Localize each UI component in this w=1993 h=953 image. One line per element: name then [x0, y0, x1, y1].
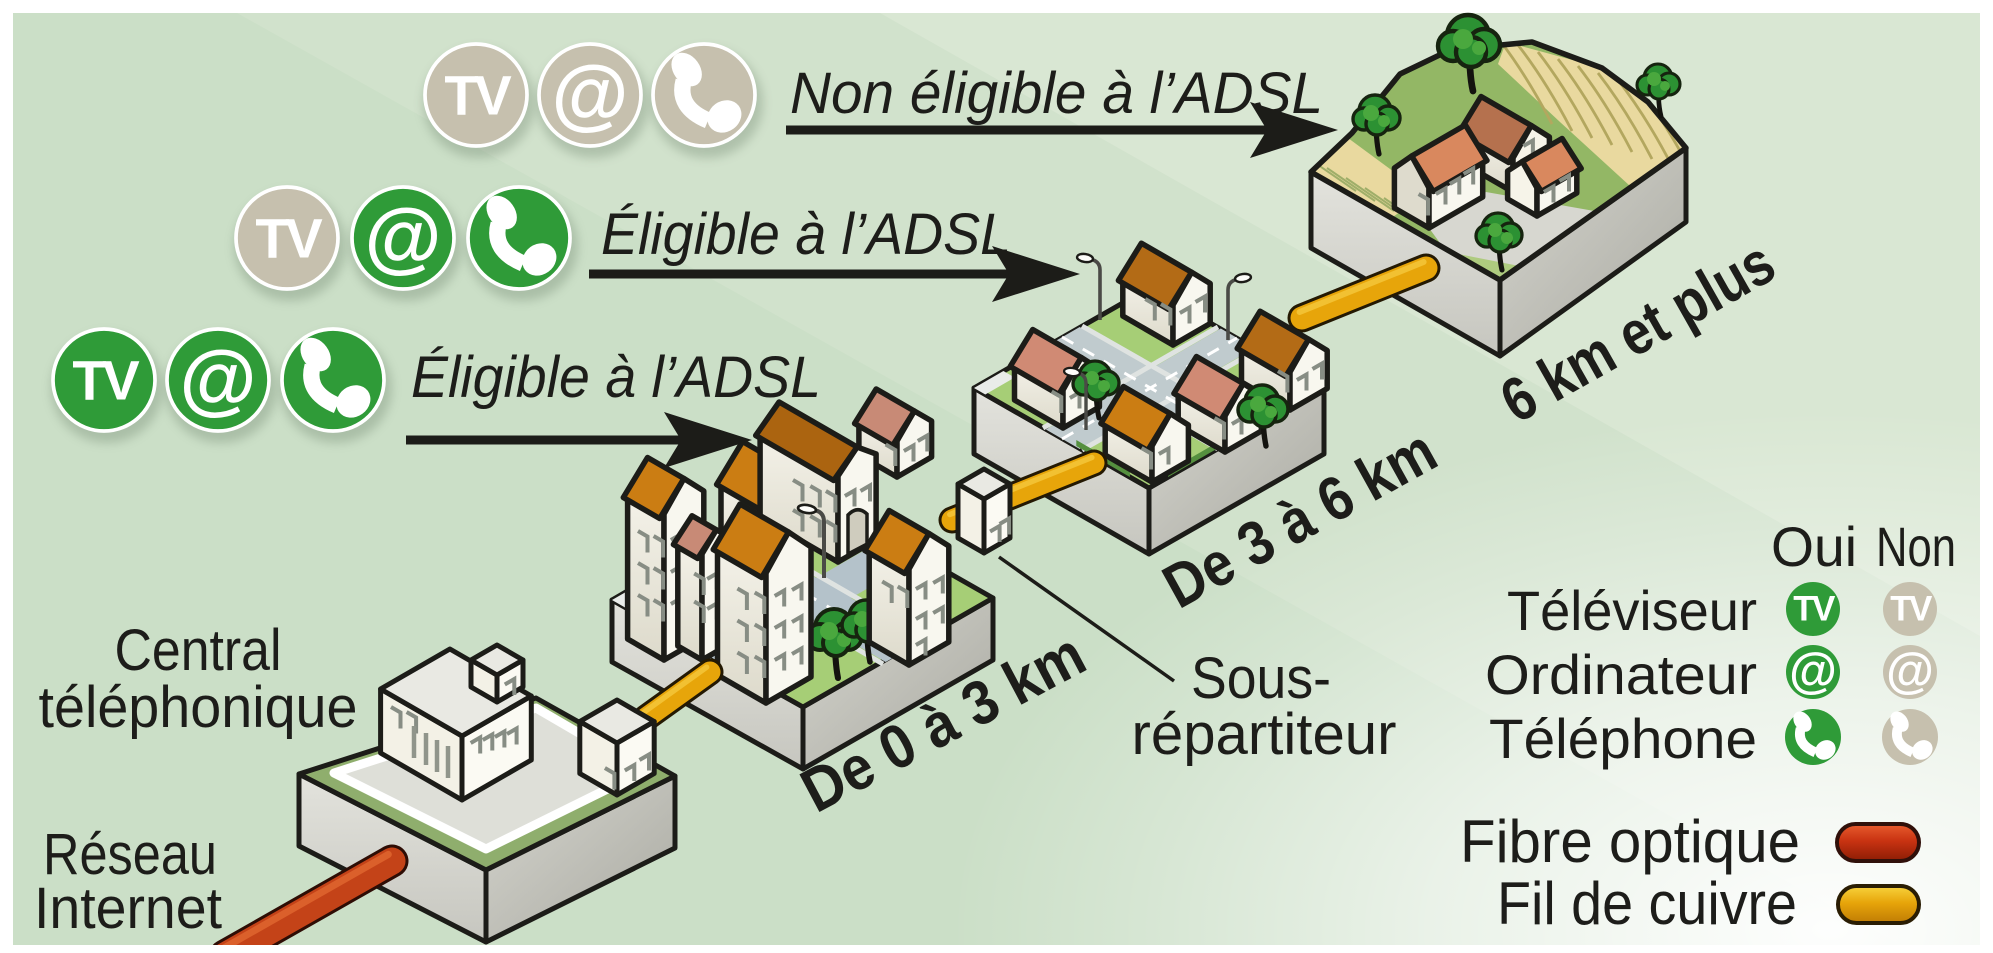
- svg-text:Téléphone: Téléphone: [1489, 707, 1757, 770]
- svg-text:TV: TV: [444, 64, 511, 127]
- svg-text:TV: TV: [255, 207, 322, 270]
- svg-text:Éligible à l’ADSL: Éligible à l’ADSL: [411, 345, 821, 410]
- svg-text:TV: TV: [1890, 590, 1933, 629]
- svg-text:@: @: [1789, 644, 1837, 698]
- svg-text:Fil de cuivre: Fil de cuivre: [1497, 870, 1797, 937]
- svg-text:TV: TV: [1793, 590, 1836, 629]
- svg-text:@: @: [551, 49, 628, 138]
- svg-text:téléphonique: téléphonique: [39, 675, 358, 740]
- svg-text:Non: Non: [1876, 515, 1956, 578]
- svg-text:Fibre optique: Fibre optique: [1460, 808, 1800, 875]
- svg-text:Central: Central: [115, 618, 282, 683]
- svg-text:@: @: [1886, 644, 1934, 698]
- svg-text:Éligible à l’ADSL: Éligible à l’ADSL: [601, 202, 1011, 267]
- svg-text:@: @: [179, 334, 256, 423]
- svg-text:Non éligible à l’ADSL: Non éligible à l’ADSL: [790, 61, 1323, 126]
- svg-text:TV: TV: [72, 349, 139, 412]
- svg-text:Téléviseur: Téléviseur: [1507, 579, 1757, 642]
- svg-text:Oui: Oui: [1771, 515, 1857, 578]
- svg-text:Ordinateur: Ordinateur: [1485, 643, 1757, 706]
- svg-text:Internet: Internet: [34, 876, 222, 941]
- svg-text:@: @: [364, 192, 441, 281]
- svg-text:répartiteur: répartiteur: [1132, 702, 1397, 767]
